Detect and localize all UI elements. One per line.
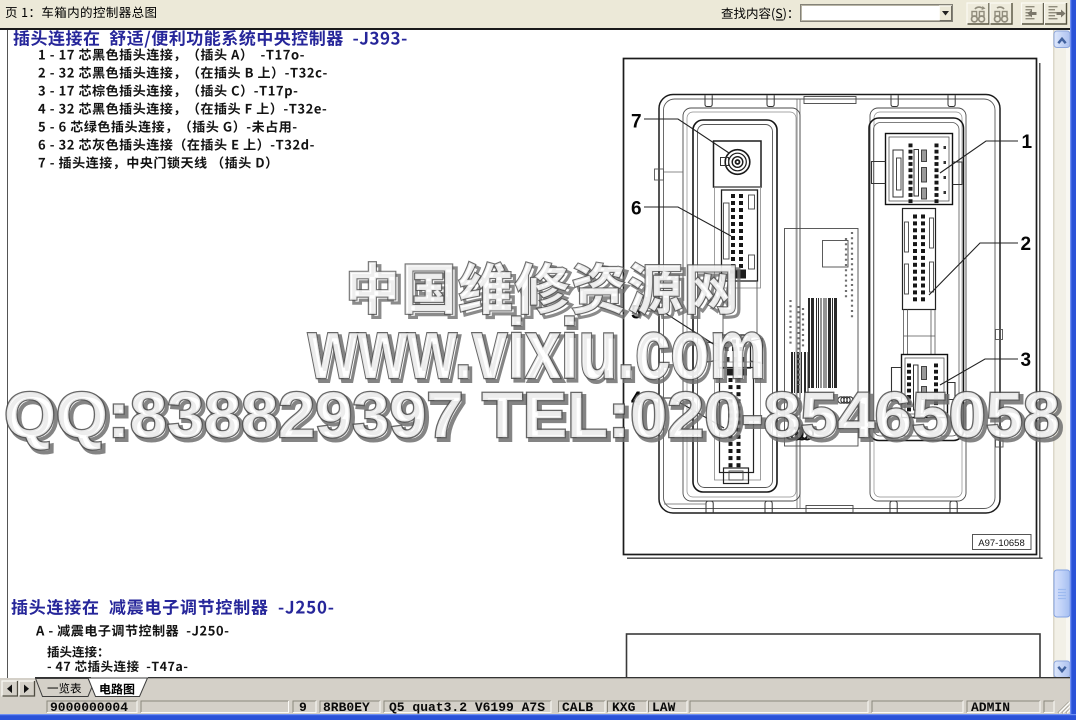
svg-text:KXG: KXG — [612, 700, 636, 715]
svg-text:3: 3 — [1021, 350, 1032, 371]
svg-text:9000000004: 9000000004 — [50, 700, 128, 715]
svg-text:ADMIN: ADMIN — [971, 700, 1010, 715]
svg-text:2: 2 — [1021, 234, 1032, 255]
svg-text:8RB0EY: 8RB0EY — [323, 700, 370, 715]
svg-text:Q5 quat3.2 V6199 A7S: Q5 quat3.2 V6199 A7S — [389, 700, 545, 715]
svg-text:LAW: LAW — [652, 700, 676, 715]
svg-text:A97-10658: A97-10658 — [978, 538, 1024, 549]
svg-text:6: 6 — [631, 199, 642, 220]
svg-text:QQ:838829397 TEL:020-85465058: QQ:838829397 TEL:020-85465058 — [4, 379, 1060, 451]
svg-text:1: 1 — [1022, 132, 1033, 153]
svg-text:7: 7 — [631, 112, 642, 133]
svg-text:9: 9 — [299, 700, 307, 715]
svg-text:CALB: CALB — [562, 700, 593, 715]
